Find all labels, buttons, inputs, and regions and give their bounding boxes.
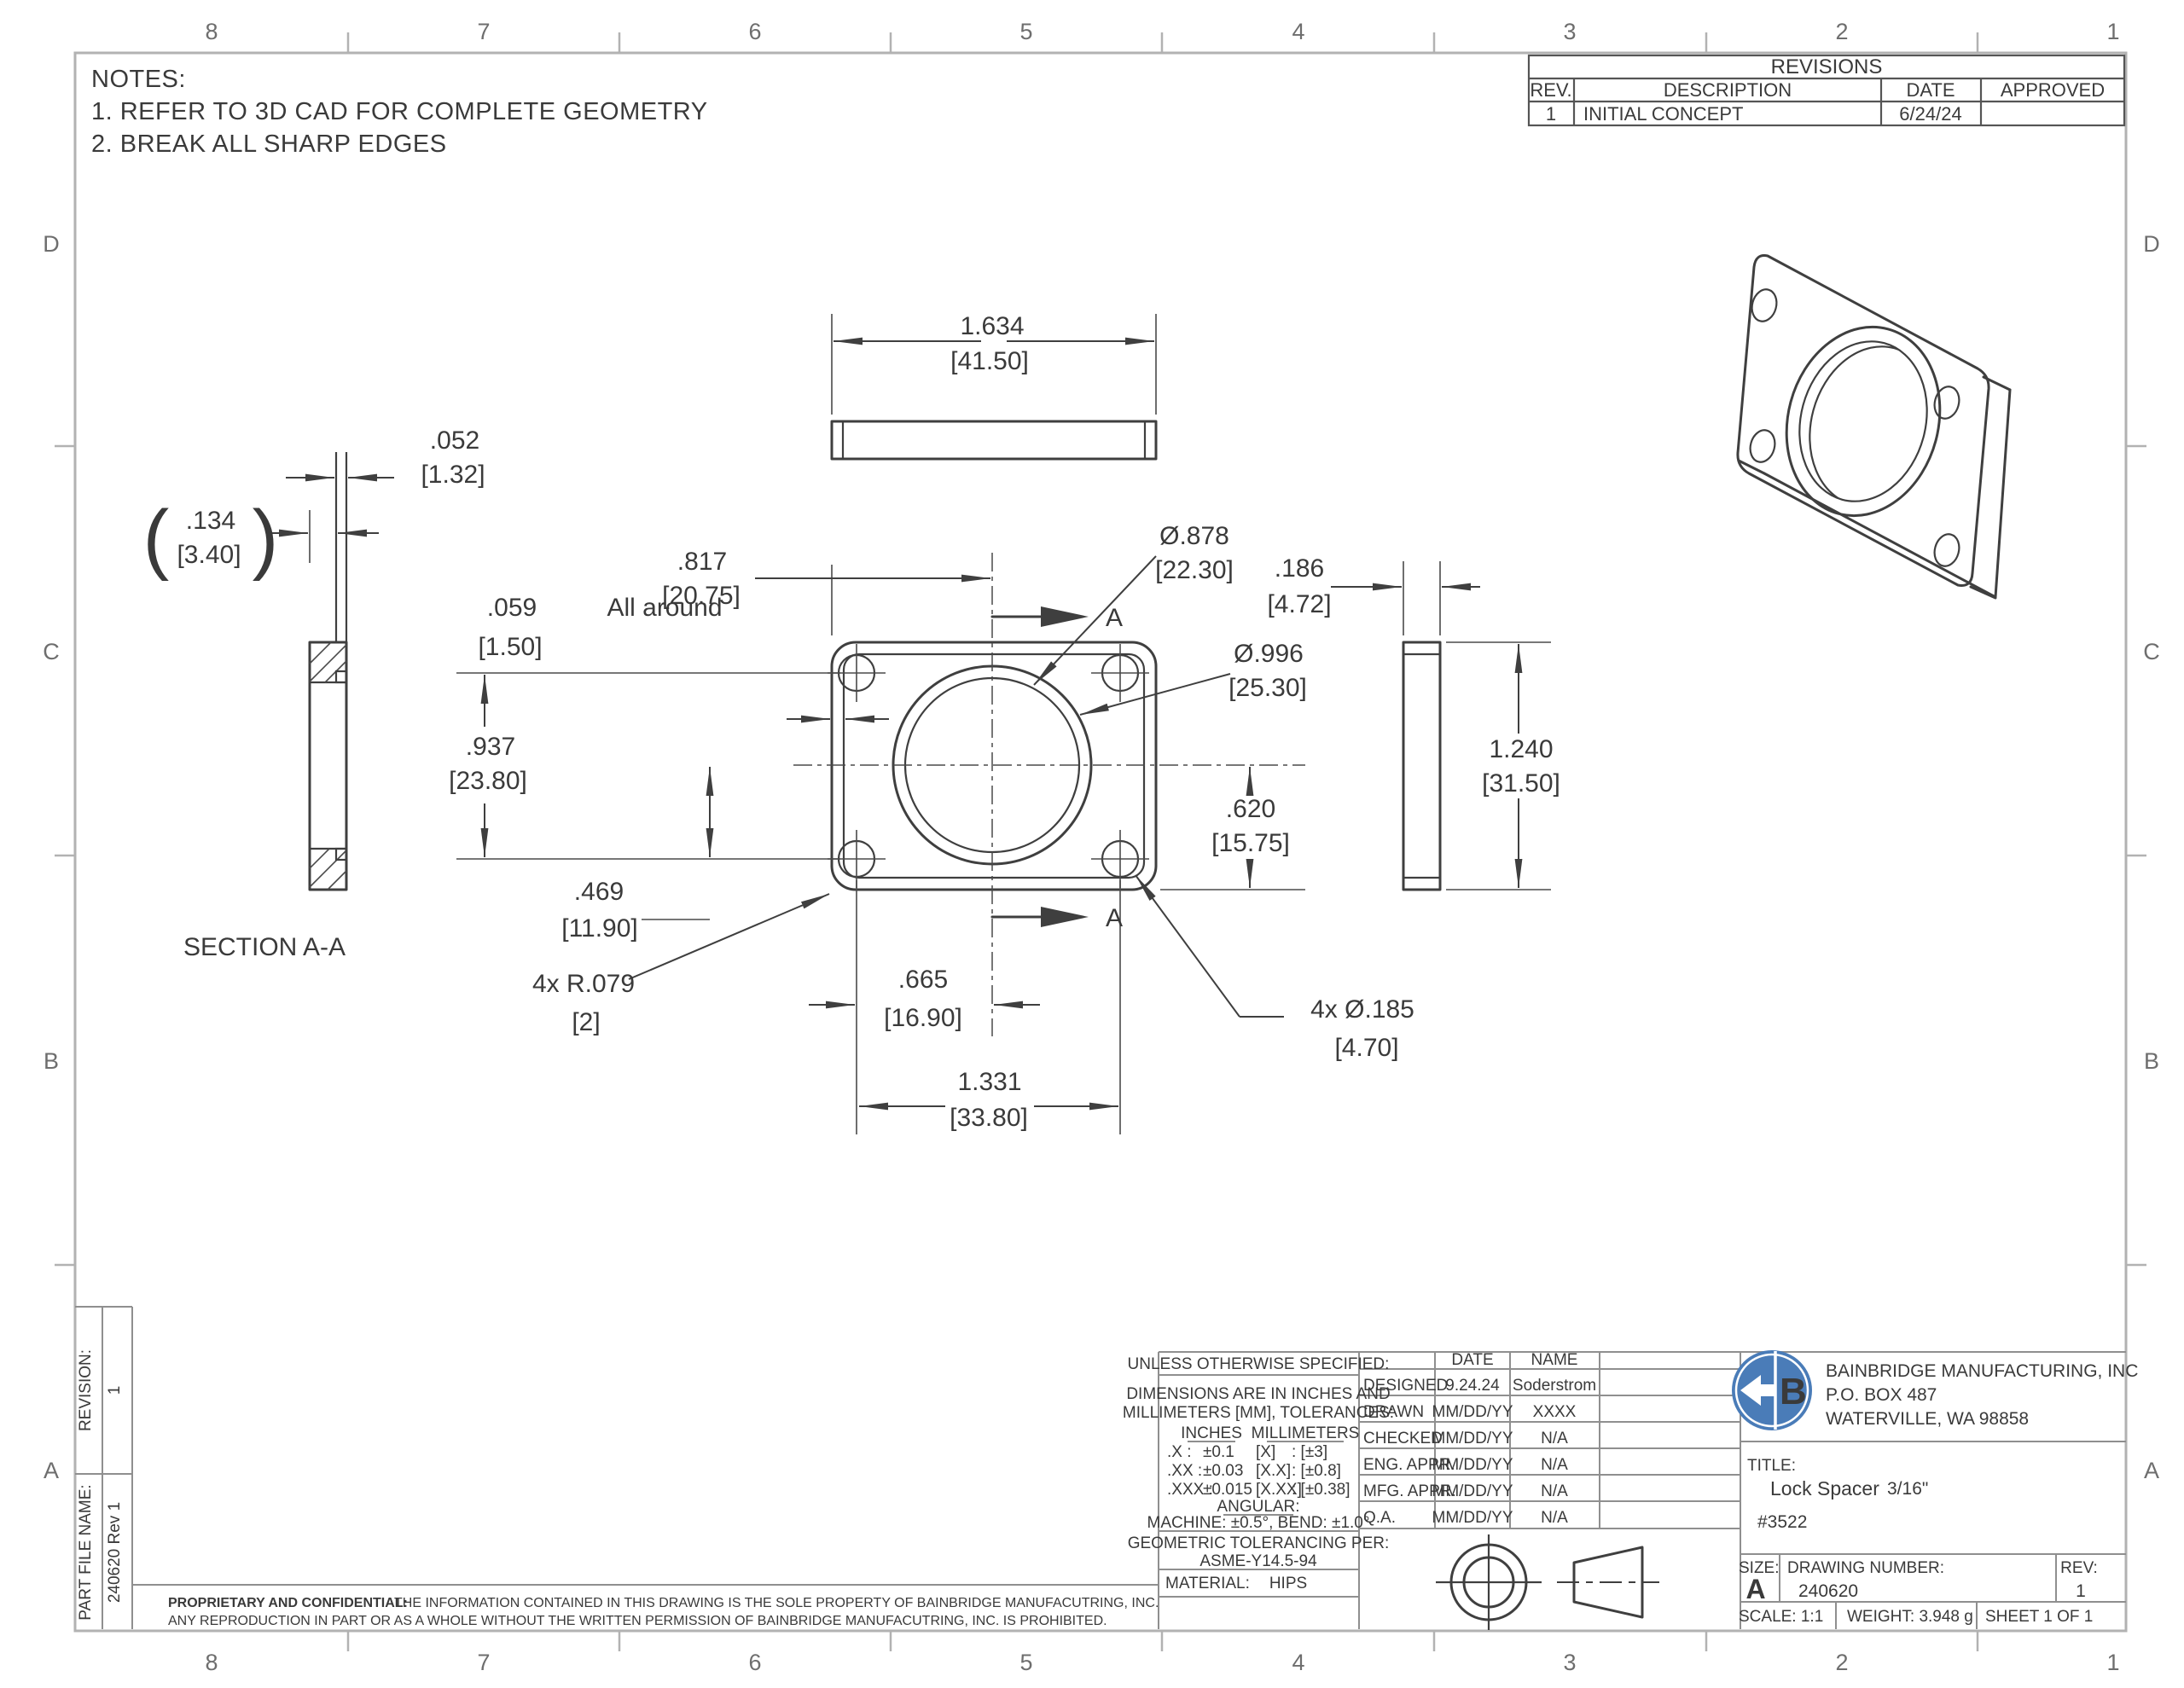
dim-996-in: Ø.996 [1234, 640, 1304, 668]
dim-620-in: .620 [1226, 795, 1275, 823]
dim-996-mm: [25.30] [1228, 674, 1307, 702]
tb-sheet: SHEET 1 OF 1 [1985, 1608, 2093, 1626]
zone-right-d: D [2143, 231, 2160, 257]
section-arrow-label-top: A [1106, 604, 1123, 632]
front-view-lip [844, 654, 1144, 878]
tb-scale: SCALE: 1:1 [1739, 1608, 1823, 1626]
section-cut-arrows: A A [992, 604, 1123, 932]
tb-title-label: TITLE: [1747, 1457, 1796, 1475]
tb-row-designed: DESIGNED [1363, 1377, 1448, 1395]
notes-block: NOTES: 1. REFER TO 3D CAD FOR COMPLETE G… [91, 66, 708, 158]
tb-row-drawn-name: XXXX [1533, 1403, 1577, 1421]
zone-bottom-3: 3 [1563, 1650, 1576, 1675]
zone-left-b: B [44, 1048, 59, 1074]
strip-revision-value: 1 [106, 1386, 124, 1395]
tb-weight: WEIGHT: 3.948 g [1847, 1608, 1973, 1626]
tb-inches-header: INCHES [1181, 1424, 1242, 1442]
section-view-label: SECTION A-A [183, 933, 346, 961]
tb-rev-value: 1 [2076, 1581, 2086, 1601]
tb-size-value: A [1745, 1574, 1765, 1604]
tb-geo-line1: GEOMETRIC TOLERANCING PER: [1128, 1534, 1390, 1552]
tb-angular-header: ANGULAR: [1217, 1498, 1299, 1516]
proprietary-notice: PROPRIETARY AND CONFIDENTIAL: THE INFORM… [132, 1585, 1159, 1628]
zone-bottom-8: 8 [205, 1650, 218, 1675]
top-view-outline [832, 421, 1156, 459]
zone-bottom-5: 5 [1019, 1650, 1032, 1675]
dim-817-in: .817 [677, 548, 727, 576]
tb-row-designed-date: 9.24.24 [1445, 1377, 1500, 1395]
company-po-box: P.O. BOX 487 [1826, 1385, 1937, 1405]
dim-1634-in: 1.634 [960, 312, 1024, 340]
note-2: 2. BREAK ALL SHARP EDGES [91, 131, 447, 158]
section-arrow-label-bottom: A [1106, 904, 1123, 932]
dim-052-mm: [1.32] [421, 461, 485, 489]
tb-dims-line2: MILLIMETERS [MM], TOLERANCES: [1123, 1404, 1394, 1422]
section-lip-notch-top [336, 671, 346, 682]
tb-tol3-mm: : [±0.38] [1292, 1481, 1350, 1499]
isometric-bore-inner [1782, 327, 1944, 515]
dim-059-in: .059 [487, 594, 537, 622]
zone-top-2: 2 [1835, 19, 1848, 44]
tb-material-value: HIPS [1269, 1575, 1307, 1592]
strip-revision-label: REVISION: [77, 1349, 95, 1431]
dim-059-note: All around [607, 594, 722, 622]
dim-469-mm: [11.90] [561, 914, 638, 943]
zone-top-6: 6 [748, 19, 761, 44]
zone-left-d: D [43, 231, 60, 257]
proprietary-line2: ANY REPRODUCTION IN PART OR AS A WHOLE W… [168, 1614, 1107, 1628]
dim-134-paren-right: ) [253, 495, 279, 582]
dim-134-mm: [3.40] [177, 541, 241, 569]
tb-row-qa-name: N/A [1541, 1509, 1568, 1527]
dim-r079-mm: [2] [572, 1008, 600, 1036]
dim-878-mm: [22.30] [1155, 556, 1234, 584]
revision-row-date: 6/24/24 [1899, 103, 1961, 125]
dim-1331-mm: [33.80] [950, 1104, 1028, 1132]
zone-bottom-4: 4 [1292, 1650, 1304, 1675]
tb-tol3-inch: ±0.015 [1203, 1481, 1252, 1499]
tb-title-size: 3/16" [1887, 1479, 1928, 1499]
revision-row-rev: 1 [1546, 103, 1556, 125]
tb-tol2-label: .XX : [1167, 1462, 1202, 1480]
tb-name-header: NAME [1531, 1351, 1578, 1369]
top-view: 1.634 [41.50] [832, 312, 1156, 459]
dim-052-in: .052 [430, 426, 479, 455]
revisions-col-approved: APPROVED [2001, 79, 2105, 101]
engineering-drawing-sheet: { "zones": { "top": ["8","7","6","5","4"… [0, 0, 2184, 1688]
tb-date-header: DATE [1451, 1351, 1493, 1369]
zone-top-5: 5 [1019, 19, 1032, 44]
tb-tol1-mm-label: [X] [1256, 1443, 1275, 1461]
revisions-col-rev: REV. [1530, 79, 1571, 101]
tb-approval-rows: DESIGNED 9.24.24 Soderstrom DRAWN MM/DD/… [1363, 1377, 1596, 1527]
zone-bottom-2: 2 [1835, 1650, 1848, 1675]
dim-937-in: .937 [466, 733, 515, 761]
company-city: WATERVILLE, WA 98858 [1826, 1409, 2029, 1429]
tb-tol1-mm: : [±3] [1292, 1443, 1327, 1461]
dim-186-in: .186 [1275, 554, 1324, 583]
tb-unless-otherwise: UNLESS OTHERWISE SPECIFIED: [1128, 1355, 1390, 1373]
dim-185-mm: [4.70] [1334, 1034, 1398, 1062]
tb-row-qa: Q.A. [1363, 1509, 1396, 1527]
tb-row-designed-name: Soderstrom [1513, 1377, 1596, 1395]
isometric-plate-face [1738, 256, 1989, 586]
zone-top-3: 3 [1563, 19, 1576, 44]
revisions-table: REVISIONS REV. DESCRIPTION DATE APPROVED… [1529, 55, 2124, 125]
zone-top-4: 4 [1292, 19, 1304, 44]
tb-title-value: Lock Spacer [1770, 1477, 1879, 1499]
revisions-col-date: DATE [1906, 79, 1955, 101]
zone-right-a: A [2144, 1458, 2159, 1483]
section-lip-notch-bottom [336, 849, 346, 860]
tb-row-eng-appr-name: N/A [1541, 1456, 1568, 1474]
tb-row-eng-appr-date: MM/DD/YY [1432, 1456, 1513, 1474]
dim-620-mm: [15.75] [1211, 829, 1290, 857]
tb-tol1-label: .X : [1167, 1443, 1192, 1461]
tb-row-mfg-appr-date: MM/DD/YY [1432, 1482, 1513, 1500]
zone-bottom-1: 1 [2106, 1650, 2119, 1675]
revisions-col-description: DESCRIPTION [1664, 79, 1792, 101]
note-1: 1. REFER TO 3D CAD FOR COMPLETE GEOMETRY [91, 98, 708, 125]
zone-top-1: 1 [2106, 19, 2119, 44]
logo-letter: B [1780, 1371, 1807, 1412]
isometric-bore-back-edge [1792, 332, 1955, 520]
dim-134-in: .134 [186, 507, 235, 535]
dim-185-in: 4x Ø.185 [1310, 995, 1414, 1024]
tb-mm-header: MILLIMETERS [1252, 1424, 1360, 1442]
tb-row-checked: CHECKED [1363, 1430, 1443, 1447]
dim-r079-in: 4x R.079 [532, 970, 635, 998]
company-name: BAINBRIDGE MANUFACTURING, INC [1826, 1361, 2138, 1381]
tb-dims-line1: DIMENSIONS ARE IN INCHES AND [1126, 1385, 1390, 1403]
border-frame [75, 53, 2126, 1631]
dim-878-in: Ø.878 [1159, 522, 1229, 550]
strip-part-file-value: 240620 Rev 1 [106, 1502, 124, 1603]
revisions-title: REVISIONS [1771, 55, 1883, 78]
tb-row-qa-date: MM/DD/YY [1432, 1509, 1513, 1527]
drawing-canvas: 8 7 6 5 4 3 2 1 8 7 6 5 4 3 2 1 D C B A … [0, 0, 2184, 1688]
tb-tol2-inch: ±0.03 [1203, 1462, 1243, 1480]
third-angle-projection-icon [1436, 1534, 1659, 1630]
zone-bottom-7: 7 [477, 1650, 490, 1675]
dim-665-in: .665 [898, 966, 948, 994]
tb-part-number: #3522 [1757, 1512, 1807, 1532]
dim-134-paren-left: ( [143, 495, 170, 582]
zone-top-8: 8 [205, 19, 218, 44]
title-block: UNLESS OTHERWISE SPECIFIED: DIMENSIONS A… [1123, 1350, 2138, 1630]
tb-tol1-inch: ±0.1 [1203, 1443, 1234, 1461]
tb-geo-line2: ASME-Y14.5-94 [1199, 1552, 1317, 1570]
tb-row-drawn-date: MM/DD/YY [1432, 1403, 1513, 1421]
tb-dwg-label: DRAWING NUMBER: [1787, 1559, 1944, 1577]
dim-469-in: .469 [574, 878, 624, 906]
zone-right-b: B [2144, 1048, 2159, 1074]
proprietary-line1: THE INFORMATION CONTAINED IN THIS DRAWIN… [394, 1596, 1159, 1610]
zone-bottom-6: 6 [748, 1650, 761, 1675]
tb-row-mfg-appr-name: N/A [1541, 1482, 1568, 1500]
dim-937-mm: [23.80] [449, 767, 527, 795]
tb-rev-label: REV: [2060, 1559, 2098, 1577]
corner-holes [839, 655, 1138, 877]
left-margin-strips: REVISION: 1 PART FILE NAME: 240620 Rev 1 [75, 1307, 132, 1629]
tb-row-drawn: DRAWN [1363, 1403, 1424, 1421]
tb-row-checked-name: N/A [1541, 1430, 1568, 1447]
isometric-view [1738, 256, 2010, 598]
zone-left-c: C [43, 639, 60, 664]
strip-part-file-label: PART FILE NAME: [77, 1484, 95, 1620]
dim-1240-in: 1.240 [1489, 735, 1553, 763]
revision-row-description: INITIAL CONCEPT [1583, 103, 1743, 125]
zone-top-7: 7 [477, 19, 490, 44]
tb-tol2-mm-label: [X.X] [1256, 1462, 1291, 1480]
tb-tol2-mm: : [±0.8] [1292, 1462, 1341, 1480]
section-hatch [310, 642, 346, 890]
notes-title: NOTES: [91, 66, 186, 93]
side-view: .186 [4.72] 1.240 [31.50] [1267, 554, 1560, 890]
dim-059-mm: [1.50] [478, 633, 542, 661]
tb-material-label: MATERIAL: [1165, 1575, 1250, 1592]
zone-right-c: C [2143, 639, 2160, 664]
dim-665-mm: [16.90] [884, 1004, 962, 1032]
tb-row-checked-date: MM/DD/YY [1432, 1430, 1513, 1447]
tb-dwg-value: 240620 [1798, 1581, 1858, 1601]
zone-left-a: A [44, 1458, 59, 1483]
dim-1240-mm: [31.50] [1482, 769, 1560, 798]
dim-186-mm: [4.72] [1267, 590, 1331, 618]
dim-1331-in: 1.331 [957, 1068, 1021, 1096]
company-block: B BAINBRIDGE MANUFACTURING, INC P.O. BOX… [1732, 1350, 2138, 1430]
side-view-outline [1403, 642, 1440, 890]
tb-angular-value: MACHINE: ±0.5°, BEND: ±1.0° [1147, 1514, 1370, 1532]
section-view: .052 [1.32] ( ) .134 [3.40] SECTION A-A [143, 426, 485, 961]
dim-1634-mm: [41.50] [950, 347, 1029, 375]
proprietary-bold: PROPRIETARY AND CONFIDENTIAL: [168, 1596, 408, 1610]
